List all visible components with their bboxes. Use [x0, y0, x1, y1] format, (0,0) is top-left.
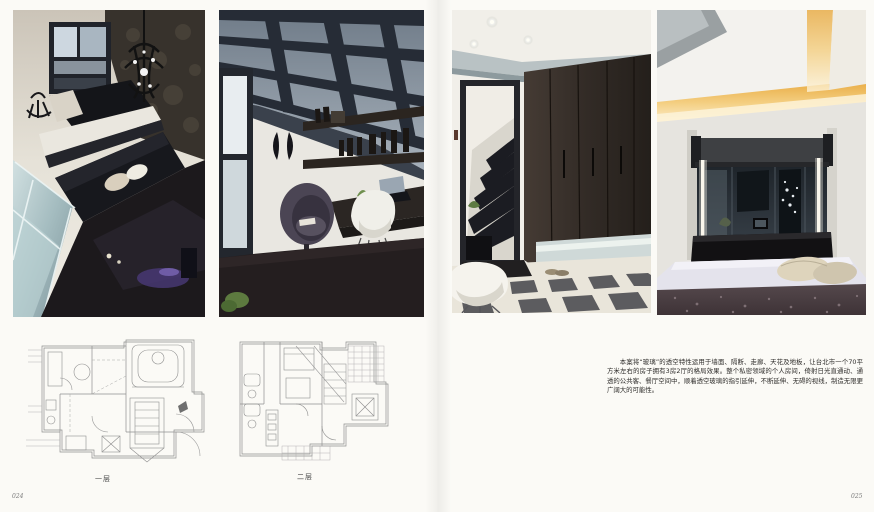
study-room-photo [219, 10, 424, 317]
hallway-illustration [452, 10, 651, 313]
floor-plan-level-two [226, 334, 396, 468]
book-spread: 一层 二层 024 [0, 0, 874, 512]
bedroom-photo [657, 10, 866, 315]
article-paragraph: 本案将“玻璃”的透空特性运用于墙面、隔断、走廊、天花及地板，让台北市一个70平方… [607, 358, 863, 396]
stair-doorway [454, 80, 520, 266]
right-page-number: 025 [851, 493, 862, 500]
plan-one-caption: 一层 [73, 474, 133, 484]
page-gutter-shadow [425, 0, 451, 512]
frame-on-ledge [753, 218, 768, 229]
article-text-block: 本案将“玻璃”的透空特性运用于墙面、隔断、走廊、天花及地板，让台北市一个70平方… [607, 358, 863, 396]
left-page-number: 024 [12, 493, 23, 500]
floor-plan-level-one [26, 336, 210, 470]
floor-plan-level-two-drawing [226, 334, 396, 468]
plan-two-caption: 二层 [275, 472, 335, 482]
study-room-illustration [219, 10, 424, 317]
bedroom-illustration [657, 10, 866, 315]
floor-plan-level-one-drawing [26, 336, 210, 470]
loft-living-room-photo [13, 10, 205, 317]
loft-living-room-illustration [13, 10, 205, 317]
hallway-wardrobe-photo [452, 10, 651, 313]
